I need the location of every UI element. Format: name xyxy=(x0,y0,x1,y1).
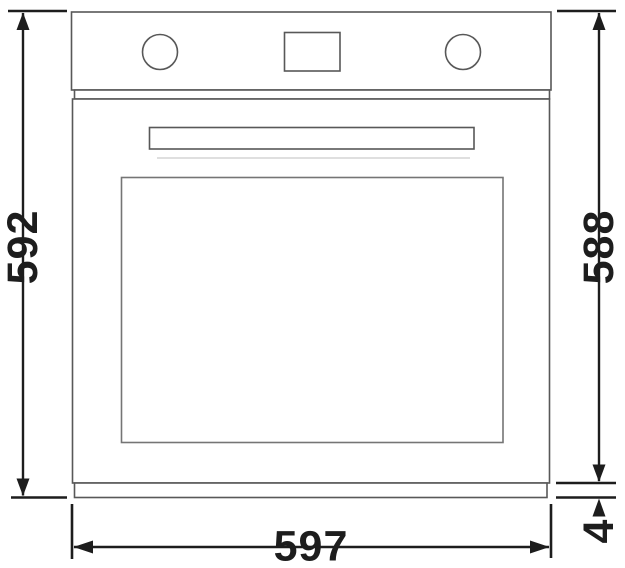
dim-label-body-height: 588 xyxy=(575,210,623,285)
dim-label-base-strip: 4 xyxy=(575,519,623,544)
dim-label-overall-width: 597 xyxy=(274,523,349,568)
dim-body-arrow-up xyxy=(593,13,606,31)
door-handle xyxy=(150,128,475,150)
display-window xyxy=(285,33,341,72)
dimension-overall-height: 592 xyxy=(0,11,67,498)
dim-label-overall-height: 592 xyxy=(0,210,47,285)
knob-right xyxy=(446,35,481,70)
dim-width-arrow-right xyxy=(530,541,550,554)
dim-base-arrow-up xyxy=(593,499,606,517)
dimension-body-height: 588 4 xyxy=(556,11,623,543)
oven-door xyxy=(73,99,550,483)
diagram-svg: 592 588 4 597 xyxy=(0,0,625,568)
oven-outline-group xyxy=(72,12,552,498)
dim-body-arrow-down xyxy=(593,465,606,483)
panel-door-seam xyxy=(75,90,550,99)
base-plinth xyxy=(75,483,548,498)
knob-left xyxy=(143,35,178,70)
dim-height-arrow-up xyxy=(17,13,30,31)
dimension-overall-width: 597 xyxy=(72,504,551,568)
oven-dimension-diagram: 592 588 4 597 xyxy=(0,0,625,568)
dim-height-arrow-down xyxy=(17,479,30,497)
dim-width-arrow-left xyxy=(74,541,94,554)
